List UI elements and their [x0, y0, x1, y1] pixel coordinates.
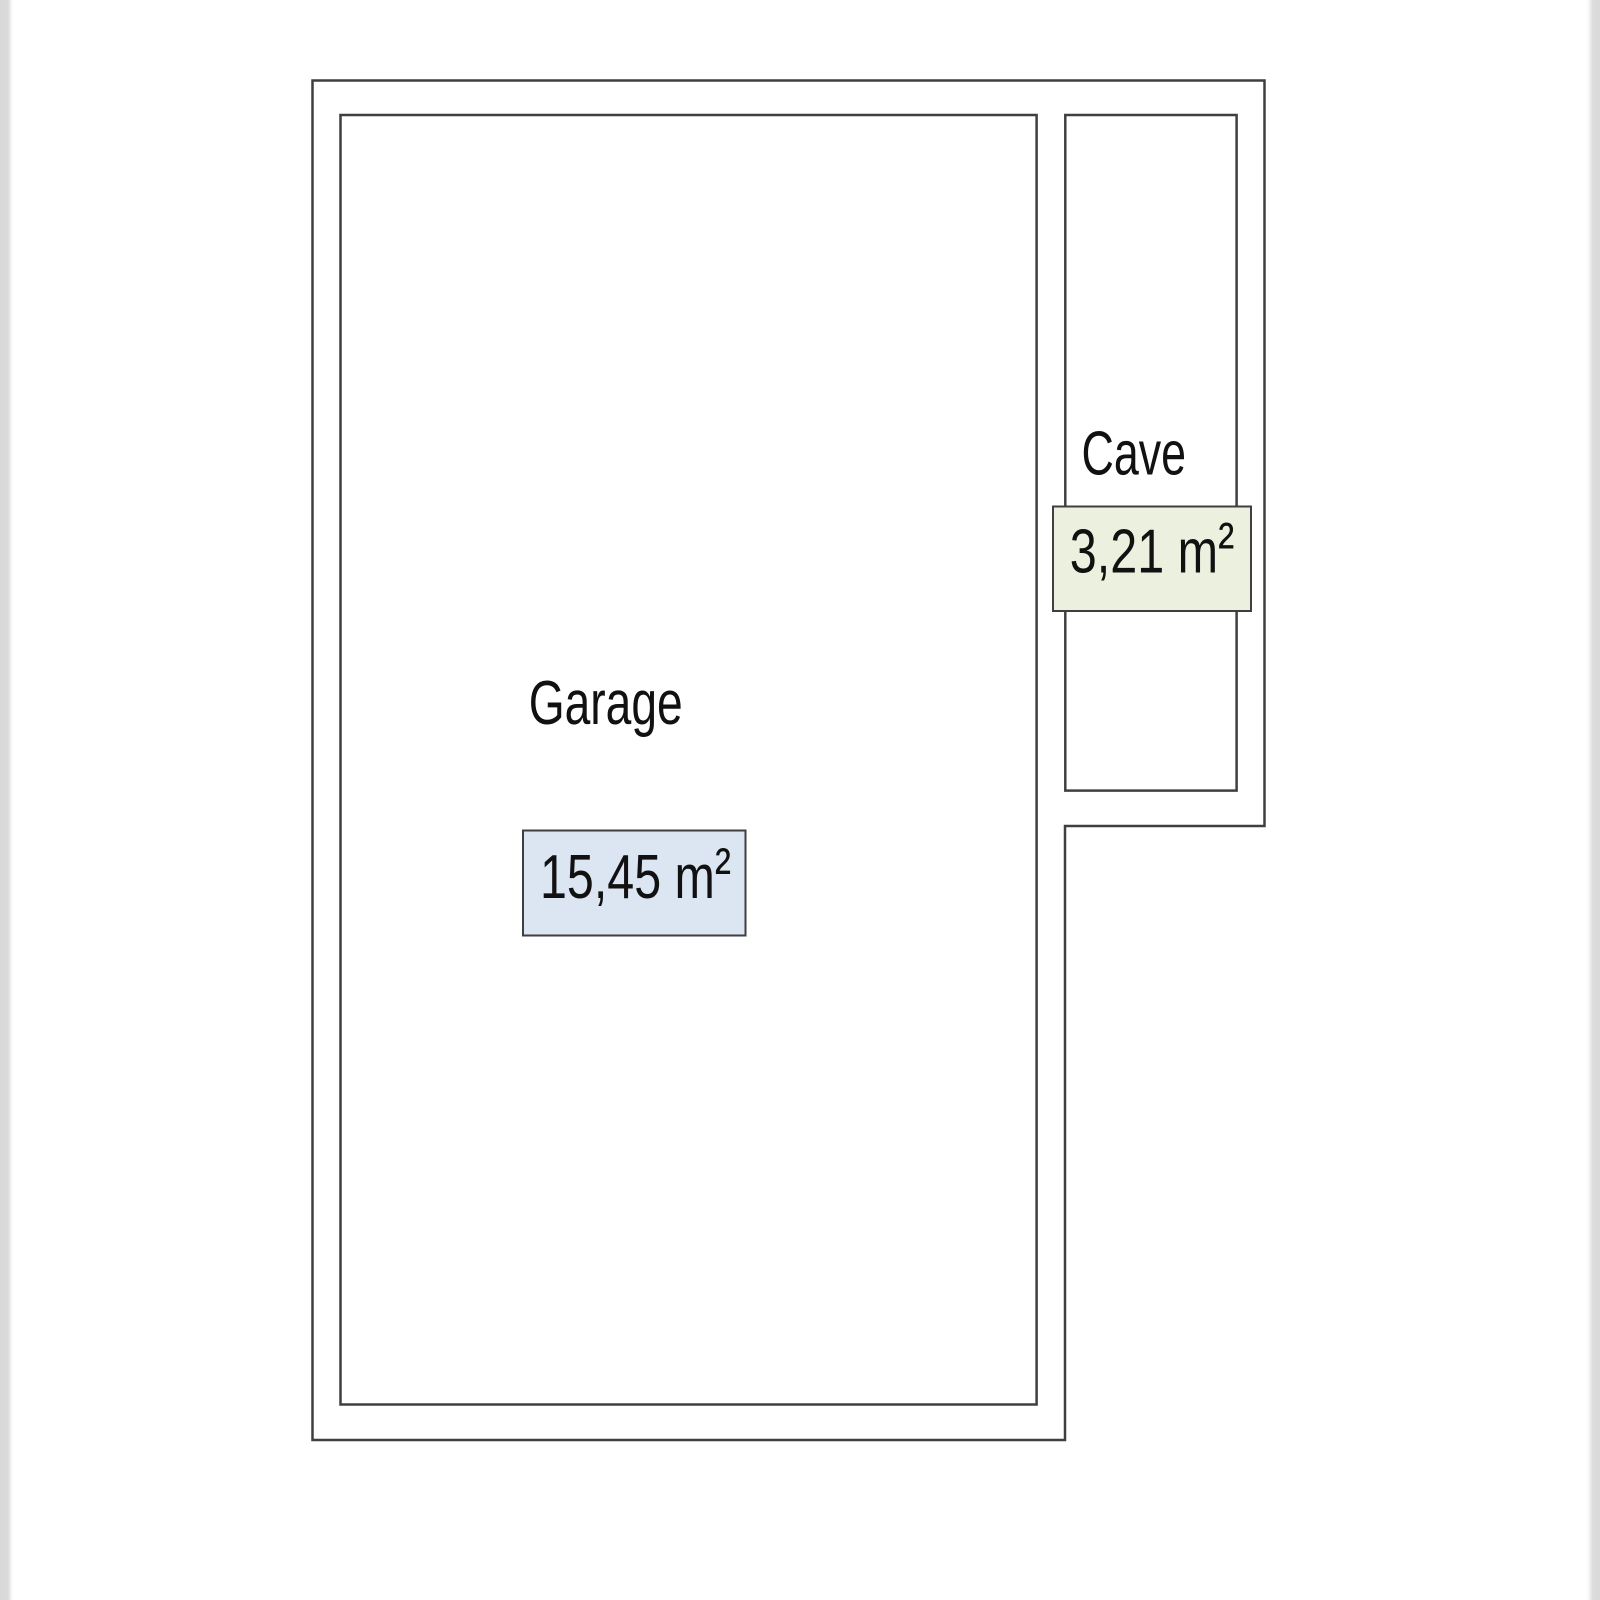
svg-text:Cave: Cave	[1082, 420, 1187, 489]
svg-text:15,45 m²: 15,45 m²	[540, 836, 731, 912]
svg-text:3,21 m²: 3,21 m²	[1070, 511, 1235, 587]
svg-text:Garage: Garage	[529, 669, 683, 738]
